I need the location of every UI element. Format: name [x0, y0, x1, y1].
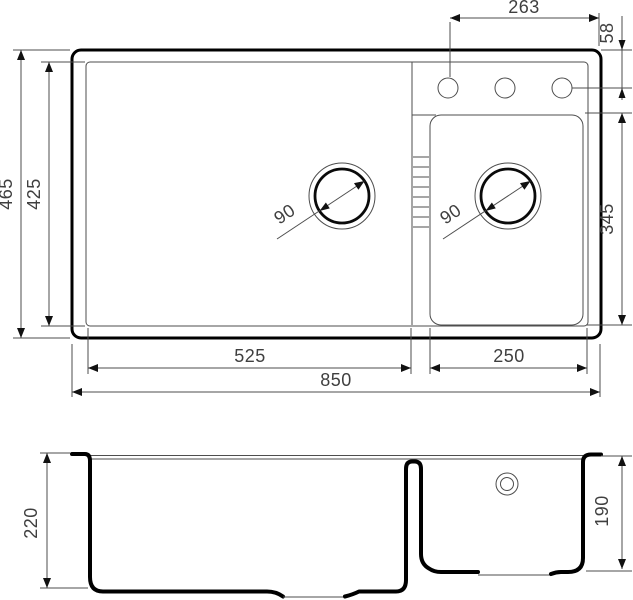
- faucet-hole-2: [495, 78, 515, 98]
- sink-section-view: [72, 454, 601, 597]
- dim-small-bowl-height: 190: [586, 456, 632, 571]
- drain-inner-circle: [501, 478, 514, 491]
- faucet-hole-1: [438, 78, 458, 98]
- dim-label-overall-depth: 465: [0, 178, 16, 210]
- sink-top-view: 90 90: [72, 50, 601, 338]
- divider-section-outline: [345, 462, 478, 597]
- dim-label-overall-width: 850: [320, 370, 352, 390]
- drawing-canvas: 90 90 465 425: [0, 0, 633, 600]
- dim-label-main-drain: 90: [270, 200, 299, 228]
- main-bowl-drain: 90: [270, 163, 375, 239]
- dim-label-faucet-offset: 58: [597, 22, 617, 43]
- faucet-holes: [438, 78, 572, 98]
- section-view-dimensions: 220 190: [21, 453, 632, 588]
- dim-main-bowl-height: 220: [21, 453, 88, 588]
- sink-outer-edge: [72, 50, 601, 338]
- small-bowl-drain-hole: [496, 473, 518, 495]
- dim-inner-rim-depth: 425: [24, 62, 85, 326]
- dim-label-small-bowl-depth: 345: [597, 203, 617, 235]
- dim-small-bowl-width: 250: [430, 328, 587, 374]
- arrowhead: [619, 40, 626, 50]
- small-bowl-drain: 90: [436, 163, 541, 239]
- sink-dimension-drawing: 90 90 465 425: [0, 0, 633, 600]
- dim-label-small-drain: 90: [436, 200, 465, 228]
- dim-label-small-bowl-width: 250: [493, 346, 525, 366]
- drain-outer-circle: [496, 473, 518, 495]
- dim-label-small-bowl-height: 190: [592, 495, 612, 527]
- main-bowl-section-outline: [72, 454, 283, 597]
- arrowhead: [619, 88, 626, 98]
- dim-small-bowl-depth: 345: [585, 113, 632, 325]
- dim-main-bowl-width: 525: [88, 328, 411, 374]
- dim-label-inner-depth: 425: [24, 178, 44, 210]
- faucet-hole-3: [552, 78, 572, 98]
- dim-label-main-bowl-width: 525: [234, 346, 266, 366]
- dim-faucet-span: 263: [450, 0, 599, 77]
- sink-inner-rim: [86, 62, 588, 326]
- dim-label-faucet-span: 263: [508, 0, 540, 17]
- dim-label-main-bowl-height: 220: [21, 507, 41, 539]
- divider-drain-ridges: [413, 157, 429, 227]
